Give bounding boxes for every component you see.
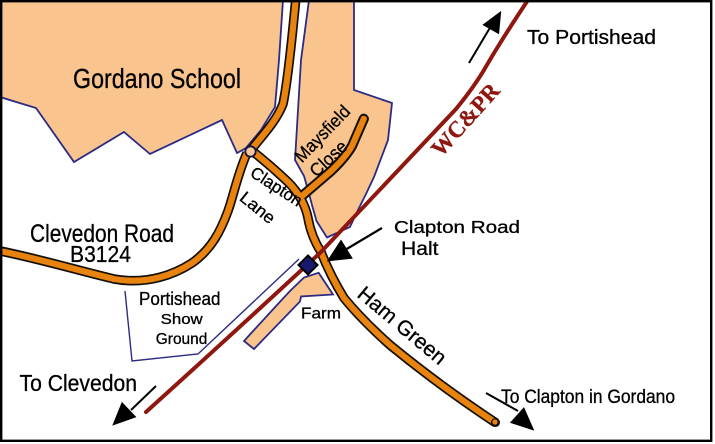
svg-text:Halt: Halt [401, 239, 439, 260]
svg-text:Clapton Road: Clapton Road [394, 217, 520, 237]
svg-text:Farm: Farm [301, 306, 341, 323]
svg-text:To Clapton in Gordano: To Clapton in Gordano [501, 386, 675, 408]
svg-text:To Portishead: To Portishead [527, 27, 656, 49]
svg-text:Ground: Ground [156, 331, 208, 348]
svg-text:Portishead: Portishead [139, 289, 221, 309]
svg-text:Show: Show [161, 311, 203, 328]
svg-text:B3124: B3124 [70, 241, 131, 267]
svg-text:To Clevedon: To Clevedon [20, 370, 138, 396]
svg-text:Gordano School: Gordano School [73, 63, 241, 94]
